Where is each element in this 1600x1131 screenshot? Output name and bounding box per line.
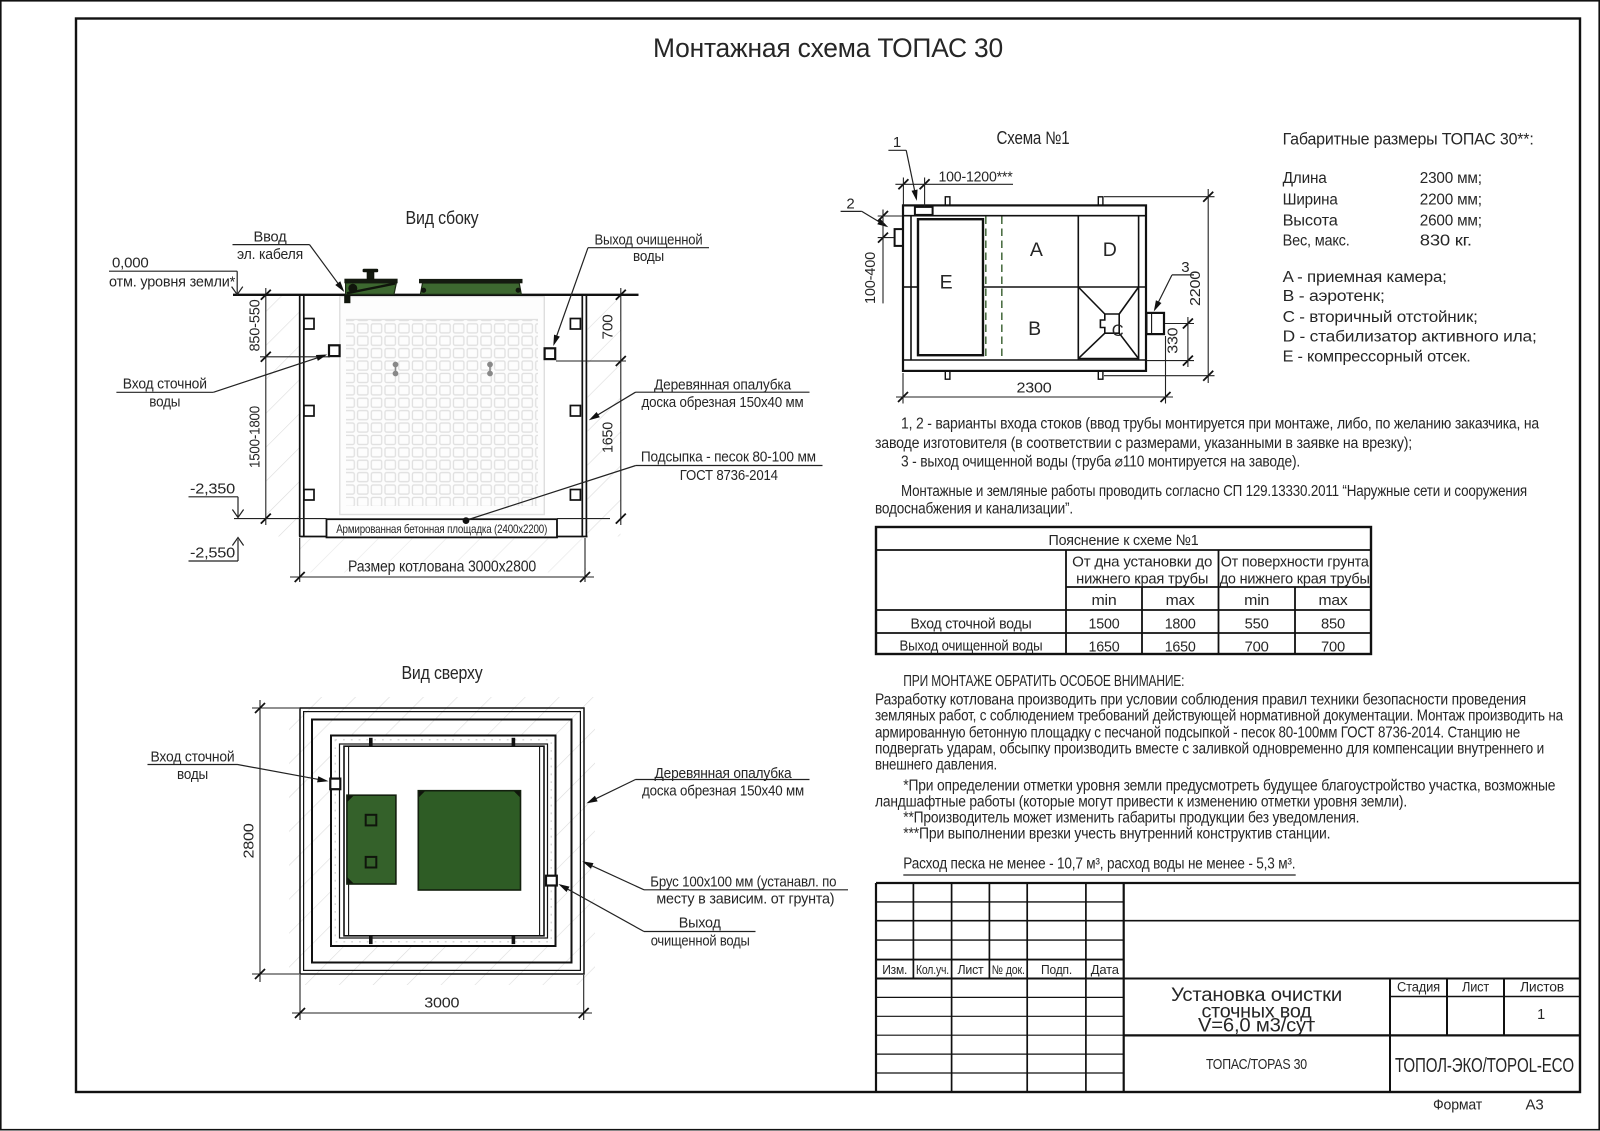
svg-text:Лист: Лист [958,963,984,977]
svg-text:ТОПАС/TOPAS 30: ТОПАС/TOPAS 30 [1206,1056,1307,1073]
svg-text:месту в зависим. от грунта): месту в зависим. от грунта) [656,892,834,908]
svg-text:Разработку котлована производи: Разработку котлована производить при усл… [875,692,1526,709]
svg-text:Листов: Листов [1520,980,1564,995]
svg-text:№ док.: № док. [992,963,1025,977]
svg-text:A - приемная камера;: A - приемная камера; [1283,269,1447,286]
svg-text:до нижнего края трубы: до нижнего края трубы [1220,572,1370,588]
svg-text:D: D [1103,239,1117,261]
svg-text:воды: воды [149,395,180,411]
svg-text:3000: 3000 [424,995,459,1012]
svg-text:Подп.: Подп. [1041,963,1072,977]
svg-text:Монтажные и земляные работы пр: Монтажные и земляные работы проводить со… [901,483,1527,500]
svg-text:Пояснение к схеме №1: Пояснение к схеме №1 [1049,532,1199,549]
svg-text:Выход: Выход [679,915,722,931]
svg-text:V=6,0 м3/сут: V=6,0 м3/сут [1198,1016,1316,1037]
svg-text:ПРИ МОНТАЖЕ ОБРАТИТЬ ОСОБОЕ ВН: ПРИ МОНТАЖЕ ОБРАТИТЬ ОСОБОЕ ВНИМАНИЕ: [903,673,1184,690]
svg-text:водоснабжения и канализации”.: водоснабжения и канализации”. [875,501,1073,518]
svg-text:Высота: Высота [1283,213,1339,230]
svg-text:Схема №1: Схема №1 [997,128,1070,148]
svg-text:Длина: Длина [1283,170,1328,187]
svg-text:Вид сверху: Вид сверху [402,663,483,683]
svg-text:max: max [1319,593,1349,609]
svg-text:850-550: 850-550 [248,299,264,351]
svg-text:330: 330 [1165,328,1181,354]
svg-text:C: C [1112,322,1124,340]
svg-text:нижнего края трубы: нижнего края трубы [1076,572,1208,588]
svg-text:воды: воды [633,249,664,265]
svg-text:ГОСТ 8736-2014: ГОСТ 8736-2014 [680,468,778,484]
svg-text:Размер котлована 3000х2800: Размер котлована 3000х2800 [348,559,537,576]
svg-text:A: A [1030,239,1043,261]
svg-text:очищенной воды: очищенной воды [651,933,750,949]
svg-text:100-400: 100-400 [863,252,879,304]
svg-text:-2,550: -2,550 [190,545,235,562]
svg-text:2800: 2800 [241,824,258,859]
svg-text:Дата: Дата [1091,963,1119,977]
svg-text:Стадия: Стадия [1397,980,1440,995]
svg-text:1, 2 - варианты входа стоков: 1, 2 - варианты входа стоков (ввод трубы… [901,416,1540,433]
svg-text:1: 1 [1537,1007,1545,1023]
svg-text:550: 550 [1245,617,1269,633]
svg-text:1650: 1650 [601,422,617,453]
svg-text:воды: воды [177,767,208,783]
svg-text:***При выполнении врезки учест: ***При выполнении врезки учесть внутренн… [903,826,1330,843]
svg-text:E: E [940,271,953,293]
svg-text:E - компрессорный отсек.: E - компрессорный отсек. [1283,348,1471,365]
svg-text:Вход сточной: Вход сточной [123,377,207,393]
svg-text:1650: 1650 [1165,640,1196,656]
svg-text:max: max [1166,593,1196,609]
svg-text:внешнего давления.: внешнего давления. [875,757,997,774]
svg-text:А3: А3 [1526,1098,1544,1114]
svg-text:2300 мм;: 2300 мм; [1420,170,1482,187]
svg-text:2600 мм;: 2600 мм; [1420,213,1482,230]
svg-text:C - вторичный отстойник;: C - вторичный отстойник; [1283,309,1478,326]
svg-text:эл. кабеля: эл. кабеля [237,247,303,263]
svg-text:отм. уровня земли*: отм. уровня земли* [109,275,236,291]
svg-text:3 - выход очищенной воды (труб: 3 - выход очищенной воды (труба ⌀110 мон… [901,453,1300,470]
svg-text:700: 700 [1245,640,1269,656]
svg-text:2200: 2200 [1188,271,1204,306]
svg-text:-2,350: -2,350 [190,481,235,498]
svg-text:2200 мм;: 2200 мм; [1420,191,1482,208]
svg-text:Вид сбоку: Вид сбоку [406,208,479,228]
svg-text:100-1200***: 100-1200*** [939,169,1014,185]
svg-text:2300: 2300 [1017,380,1052,397]
svg-text:От поверхности грунта: От поверхности грунта [1221,555,1370,571]
svg-text:1800: 1800 [1165,617,1196,633]
svg-text:Выход очищенной воды: Выход очищенной воды [900,639,1043,655]
svg-text:подвергать ударам, обсыпку про: подвергать ударам, обсыпку производить в… [875,741,1544,758]
svg-text:Деревянная опалубка: Деревянная опалубка [654,377,792,393]
svg-text:850: 850 [1321,617,1345,633]
svg-text:ландшафтные работы (которые мо: ландшафтные работы (которые могут привес… [875,794,1407,811]
svg-text:D - стабилизатор активного ила: D - стабилизатор активного ила; [1283,329,1537,346]
svg-text:700: 700 [601,314,617,339]
svg-text:заводе изготовителя (в соответ: заводе изготовителя (в соответствии с ра… [875,435,1412,452]
svg-text:2: 2 [846,196,854,213]
svg-text:0,000: 0,000 [112,255,149,272]
svg-text:1: 1 [893,134,901,151]
svg-text:1500: 1500 [1089,617,1120,633]
svg-text:Кол.уч.: Кол.уч. [916,963,949,977]
svg-text:Лист: Лист [1462,980,1489,995]
svg-text:доска обрезная 150х40 мм: доска обрезная 150х40 мм [642,395,804,411]
svg-text:Армированная бетонная площадка: Армированная бетонная площадка (2400х220… [336,522,547,536]
svg-text:Ввод: Ввод [254,230,288,246]
svg-text:830 кг.: 830 кг. [1420,232,1472,249]
svg-text:Монтажная схема ТОПАС 30: Монтажная схема ТОПАС 30 [653,33,1003,63]
svg-text:ТОПОЛ-ЭКО/TOPOL-ECO: ТОПОЛ-ЭКО/TOPOL-ECO [1395,1055,1574,1077]
svg-text:Брус 100х100 мм (устанавл. по: Брус 100х100 мм (устанавл. по [650,874,836,890]
svg-text:земляных работ, с соблюдением: земляных работ, с соблюдением требований… [875,708,1563,725]
svg-text:B - аэротенк;: B - аэротенк; [1283,288,1385,305]
svg-text:доска обрезная 150х40 мм: доска обрезная 150х40 мм [642,783,804,799]
svg-text:Вход сточной воды: Вход сточной воды [911,617,1032,633]
svg-text:Габаритные размеры ТОПАС 30**:: Габаритные размеры ТОПАС 30**: [1283,130,1534,149]
svg-text:армированную бетонную площадку: армированную бетонную площадку с песчано… [875,725,1520,742]
svg-text:700: 700 [1321,640,1345,656]
svg-text:Расход песка не менее - 10,7 м: Расход песка не менее - 10,7 м³, расход … [903,856,1295,873]
svg-text:Изм.: Изм. [882,963,907,977]
svg-text:Ширина: Ширина [1283,191,1339,208]
svg-text:1500-1800: 1500-1800 [248,406,264,468]
svg-text:От дна установки до: От дна установки до [1072,555,1212,571]
svg-text:Формат: Формат [1433,1098,1483,1114]
svg-text:*При определении отметки уровн: *При определении отметки уровня земли пр… [903,778,1555,795]
svg-text:min: min [1092,593,1117,609]
svg-text:Выход очищенной: Выход очищенной [595,233,703,249]
svg-text:Вход сточной: Вход сточной [151,749,235,765]
svg-text:**Производитель может изменить: **Производитель может изменить габариты … [903,810,1359,827]
svg-text:B: B [1028,318,1041,340]
svg-text:min: min [1244,593,1269,609]
svg-text:1650: 1650 [1089,640,1120,656]
svg-text:Вес, макс.: Вес, макс. [1283,232,1350,249]
svg-text:Подсыпка - песок 80-100 мм: Подсыпка - песок 80-100 мм [641,449,816,465]
